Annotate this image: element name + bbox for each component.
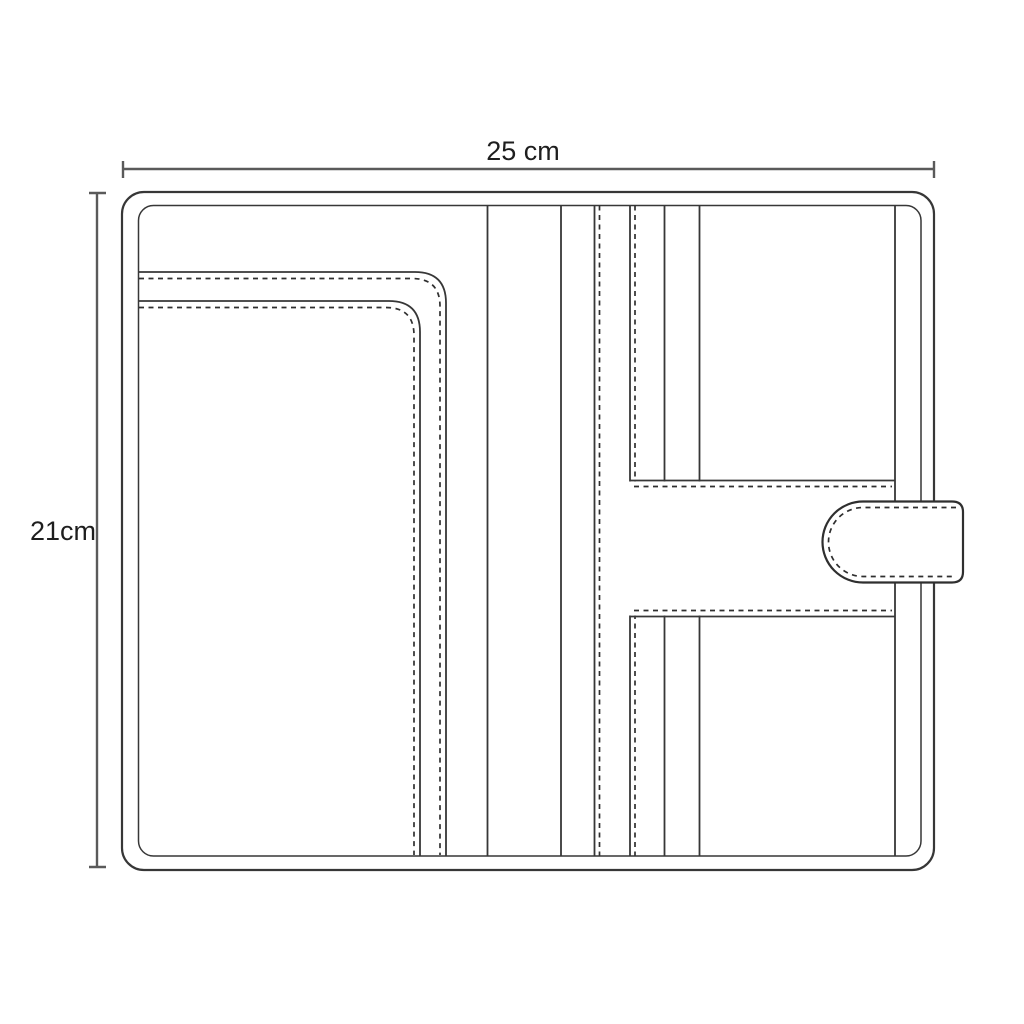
height-dimension-label: 21cm [30, 516, 96, 546]
pattern-drawing-canvas: 25 cm 21cm [0, 0, 1024, 1024]
height-dimension: 21cm [30, 193, 106, 867]
width-dimension: 25 cm [123, 136, 934, 178]
width-dimension-label: 25 cm [486, 136, 560, 166]
notebook-cover-pattern-diagram: 25 cm 21cm [0, 0, 1024, 1024]
snap-closure-tab [823, 502, 964, 583]
